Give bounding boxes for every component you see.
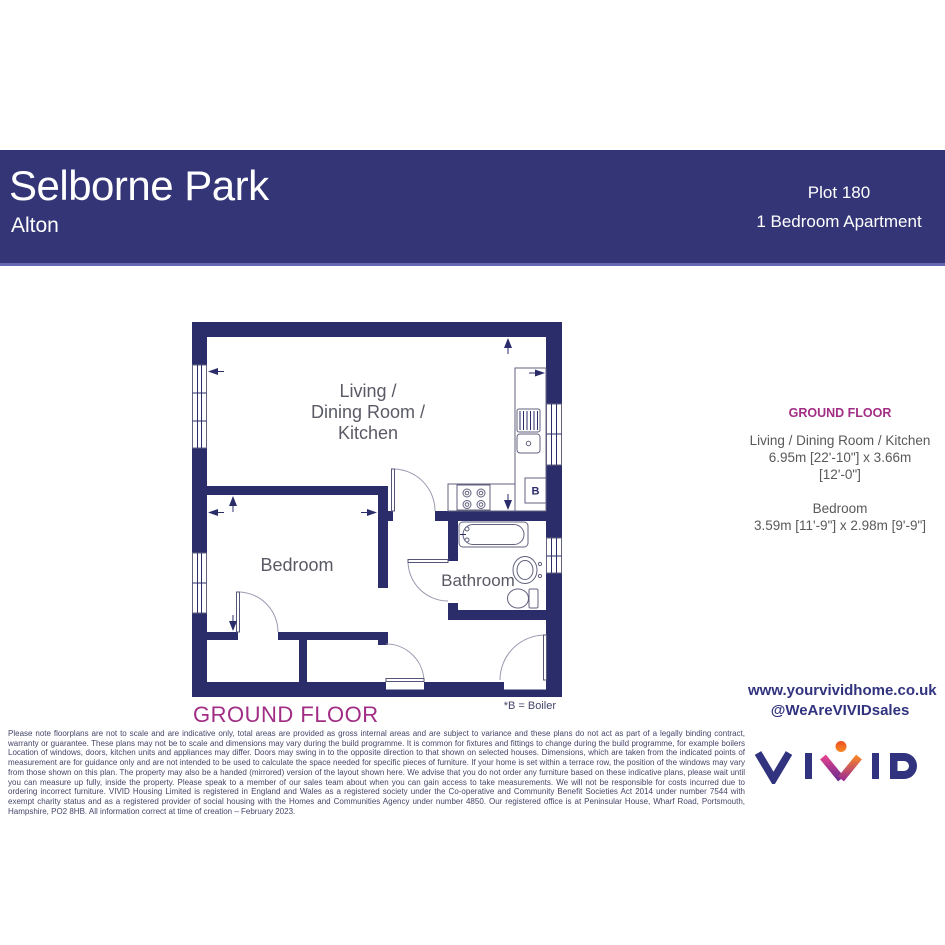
hob-icon (457, 485, 490, 510)
dimensions-heading: GROUND FLOOR (748, 406, 932, 420)
toilet-icon (508, 589, 539, 608)
bathroom-label: Bathroom (408, 571, 548, 591)
floor-title: GROUND FLOOR (193, 702, 379, 728)
bedroom-label: Bedroom (227, 555, 367, 576)
bath-icon (459, 522, 528, 547)
boiler-letter: B (532, 486, 540, 498)
dimensions-bedroom-label: Bedroom (748, 500, 932, 517)
vivid-logo (753, 738, 928, 784)
dimensions-panel: GROUND FLOOR Living / Dining Room / Kitc… (748, 406, 932, 551)
contact-links: www.yourvividhome.co.uk @WeAreVIVIDsales (748, 681, 932, 721)
dimensions-living-label: Living / Dining Room / Kitchen (748, 432, 932, 449)
vivid-logo-letters (758, 741, 917, 779)
floorplan-page: Selborne Park Alton Plot 180 1 Bedroom A… (0, 0, 945, 945)
kitchen-sink-icon (517, 409, 540, 453)
dimensions-bedroom: Bedroom 3.59m [11'-9"] x 2.98m [9'-9"] (748, 500, 932, 534)
plot-number: Plot 180 (748, 178, 930, 207)
living-room-label: Living / Dining Room / Kitchen (268, 381, 468, 444)
logo-dot-icon (836, 741, 847, 752)
development-location: Alton (11, 214, 59, 238)
website-link[interactable]: www.yourvividhome.co.uk (748, 681, 932, 701)
property-type: 1 Bedroom Apartment (748, 207, 930, 236)
dimensions-living-size: 6.95m [22'-10"] x 3.66m [12'-0"] (748, 449, 932, 483)
dimensions-bedroom-size: 3.59m [11'-9"] x 2.98m [9'-9"] (748, 517, 932, 534)
development-title: Selborne Park (9, 162, 269, 210)
header-band: Selborne Park Alton Plot 180 1 Bedroom A… (0, 150, 945, 266)
disclaimer-text: Please note floorplans are not to scale … (8, 729, 745, 816)
dimensions-living: Living / Dining Room / Kitchen 6.95m [22… (748, 432, 932, 483)
boiler-icon: B (525, 478, 546, 503)
floorplan-drawing: B (185, 315, 570, 705)
boiler-note: *B = Boiler (406, 700, 556, 712)
social-handle-link[interactable]: @WeAreVIVIDsales (748, 701, 932, 721)
plot-info: Plot 180 1 Bedroom Apartment (748, 178, 930, 236)
